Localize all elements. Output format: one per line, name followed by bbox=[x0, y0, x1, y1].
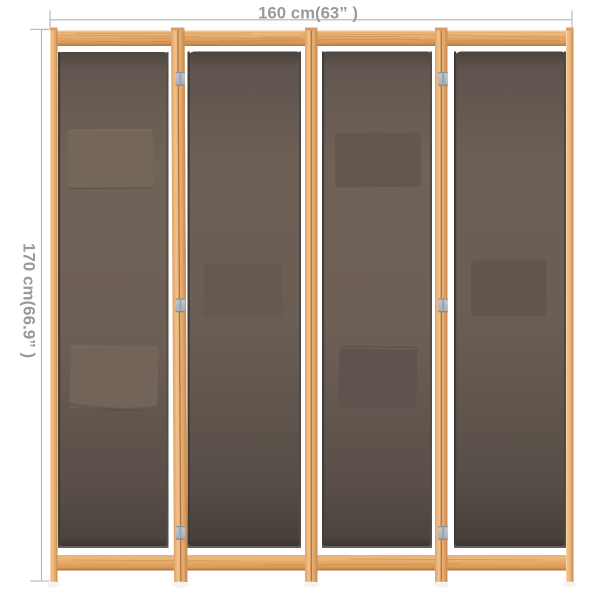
svg-text:170 cm(66.9” ): 170 cm(66.9” ) bbox=[20, 243, 39, 358]
svg-text:160 cm(63” ): 160 cm(63” ) bbox=[258, 3, 358, 22]
